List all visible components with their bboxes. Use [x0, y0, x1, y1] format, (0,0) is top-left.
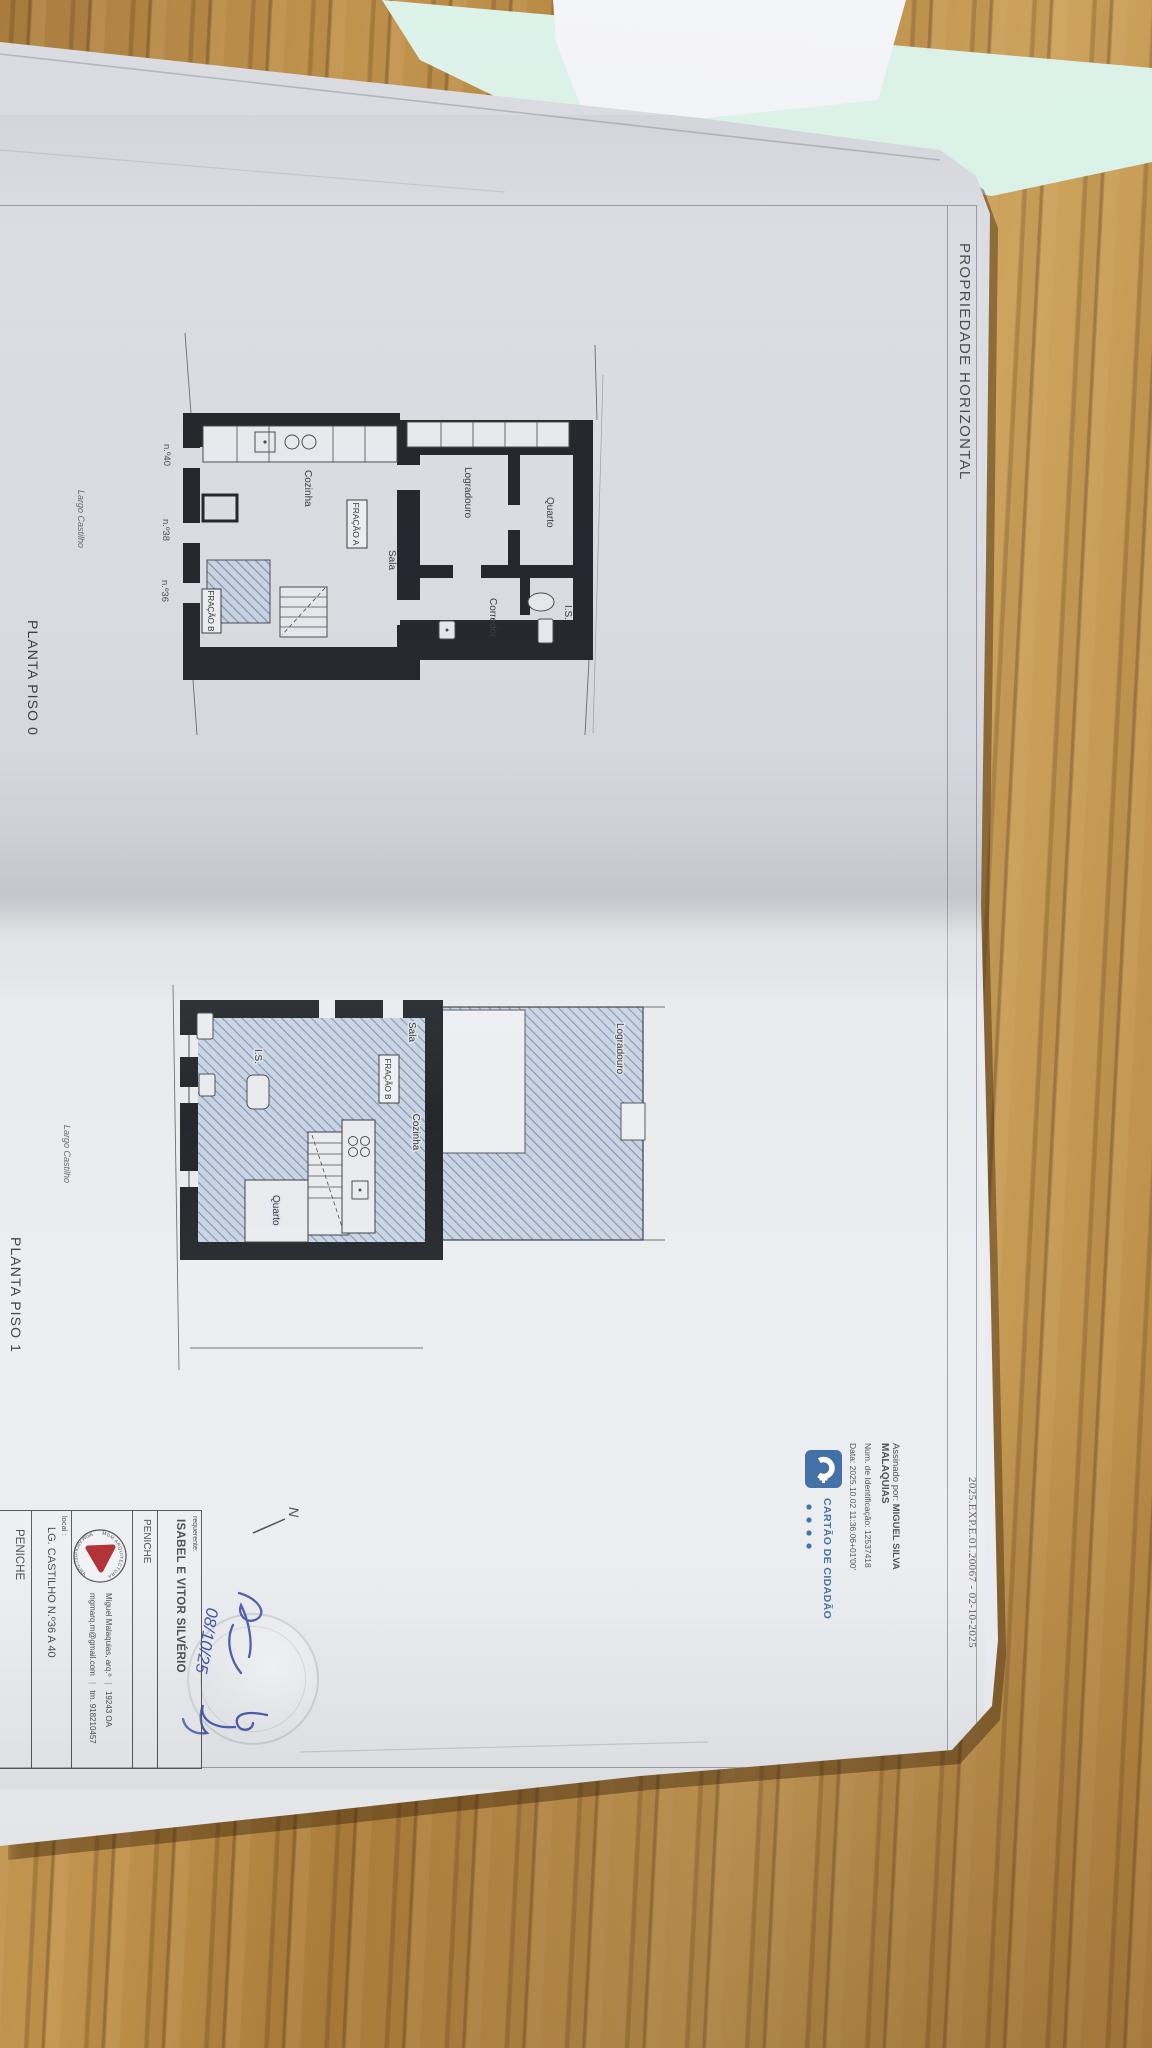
door-n36: n.º36	[159, 580, 170, 602]
fracao-b-label: FRAÇÃO B	[206, 591, 215, 632]
door-n40: n.º40	[161, 444, 172, 466]
fracao-a-box: FRAÇÃO A	[347, 500, 367, 548]
contact-line: mgmarq.m@gmail.com | tm. 918210457	[88, 1593, 97, 1744]
fracao-a-label: FRAÇÃO A	[351, 503, 361, 546]
architect-email: mgmarq.m@gmail.com	[88, 1593, 97, 1676]
title-block-divider	[71, 1511, 72, 1768]
local-city: PENICHE	[13, 1529, 25, 1580]
room-cozinha-p1: Cozinha	[410, 1114, 421, 1151]
room-quarto: Quarto	[544, 497, 555, 528]
kitchen-counter-piso1	[342, 1120, 375, 1233]
requerente-city: PENICHE	[141, 1519, 152, 1563]
floorplan-piso1: FRAÇÃO B Sala Cozinha Quarto I.S. Lograd…	[105, 975, 665, 1375]
room-logradouro-p1: Logradouro	[614, 1023, 625, 1075]
cartao-cidadao-dots	[802, 1502, 814, 1582]
signature-name1: MIGUEL SILVA	[890, 1504, 901, 1570]
signature-name2: MALAQUIAS	[879, 1443, 890, 1643]
room-labels-piso0: Quarto I.S. Corredor Logradouro Sala Coz…	[302, 467, 573, 638]
caption-planta-piso-0: PLANTA PISO 0	[25, 620, 41, 736]
requerente-label: requerente:	[191, 1516, 198, 1552]
separator: |	[88, 1682, 97, 1684]
signature-label: Assinado por:	[890, 1443, 901, 1501]
drawing-sheet: PROPRIEDADE HORIZONTAL 2025.EXP.E.01.200…	[0, 115, 985, 1790]
digital-signature-stamp: Assinado por: MIGUEL SILVA MALAQUIAS Num…	[848, 1443, 901, 1643]
frame-left-line	[0, 205, 977, 206]
signature-id: Num. de Identificação: 12537418	[863, 1443, 873, 1643]
fracao-b-label-piso1: FRAÇÃO B	[383, 1059, 392, 1100]
architect-phone: tm. 918210457	[88, 1690, 97, 1743]
window-strip	[407, 422, 569, 447]
cartao-cidadao-logo-block: CARTÃO DE CIDADÃO	[797, 1450, 845, 1680]
north-label: N	[286, 1507, 302, 1518]
north-arrow: N	[245, 1495, 315, 1555]
separator: |	[104, 1683, 113, 1685]
title-block-divider	[31, 1511, 32, 1768]
page-title: PROPRIEDADE HORIZONTAL	[956, 243, 973, 481]
process-reference-stamp: 2025.EXP.E.01.20067 - 02-10-2025	[966, 1477, 978, 1648]
street-label-piso1: Largo Castilho	[62, 1125, 72, 1183]
staircase-dashed	[280, 587, 327, 637]
frame-band-line	[947, 205, 948, 1767]
architect-line: Miguel Malaquias, arq.º | 19243 OA	[104, 1593, 113, 1727]
room-sala: Sala	[386, 550, 397, 570]
requerente-name: ISABEL E VITOR SILVÉRIO	[174, 1519, 186, 1673]
yard-small-box	[621, 1103, 645, 1140]
street-label-piso0: Largo Castilho	[76, 490, 86, 548]
yard-white-inset	[440, 1010, 525, 1153]
door-numbers: n.º40 n.º38 n.º36	[159, 444, 172, 602]
room-cozinha: Cozinha	[302, 470, 313, 507]
local-value: LG. CASTILHO N.º36 A 40	[45, 1527, 57, 1658]
room-is: I.S.	[562, 605, 573, 620]
caption-planta-piso-1: PLANTA PISO 1	[8, 1237, 24, 1353]
title-block-divider	[157, 1511, 158, 1768]
kitchen-counter	[203, 426, 397, 462]
mgm-arquitectos-logo: MGM ARQUITECTURA MGM ARQUITECTURA	[71, 1527, 129, 1585]
room-is-p1: I.S.	[252, 1049, 263, 1064]
title-block-divider	[132, 1511, 133, 1768]
fracao-b-box: FRAÇÃO B	[202, 589, 221, 633]
bathtub	[247, 1075, 269, 1109]
architect-name: Miguel Malaquias, arq.º	[104, 1593, 113, 1676]
cartao-cidadao-label: CARTÃO DE CIDADÃO	[821, 1498, 833, 1619]
local-label: local :	[60, 1516, 69, 1536]
fracao-b-box-piso1: FRAÇÃO B	[379, 1055, 399, 1103]
title-block: requerente: ISABEL E VITOR SILVÉRIO PENI…	[0, 1510, 202, 1769]
room-corredor: Corredor	[487, 598, 498, 638]
floorplan-piso0: FRAÇÃO A FRAÇÃO B Quarto I.S. Corredor L…	[45, 315, 605, 735]
closet-stub	[203, 495, 237, 521]
photo-of-floorplan-document: PROPRIEDADE HORIZONTAL 2025.EXP.E.01.200…	[0, 0, 1152, 2048]
cartao-cidadao-icon	[802, 1450, 842, 1490]
architect-registration: 19243 OA	[104, 1691, 113, 1727]
room-quarto-p1: Quarto	[270, 1195, 281, 1226]
room-sala-p1: Sala	[406, 1022, 417, 1042]
room-logradouro: Logradouro	[462, 467, 473, 519]
signature-date: Data: 2025.10.02 11:36:06+01'00'	[848, 1443, 858, 1643]
door-n38: n.º38	[160, 519, 171, 541]
